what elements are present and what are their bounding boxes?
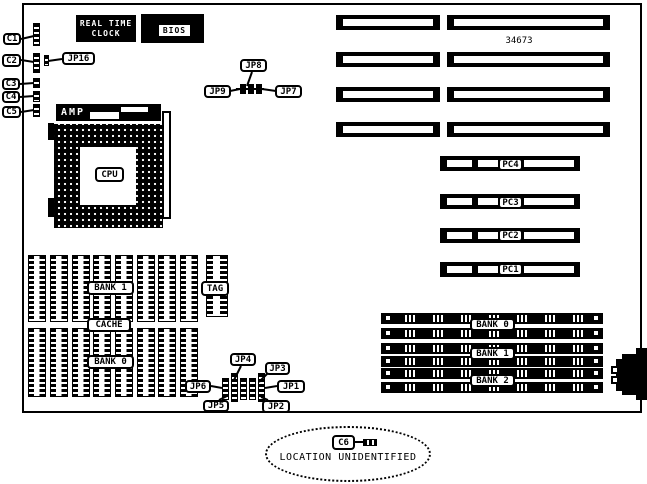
- connector-c1-pins: [33, 23, 40, 46]
- connector-c3-pins: [33, 78, 40, 88]
- isa-slot-segment: [447, 15, 610, 30]
- callout-c1: C1: [3, 33, 21, 45]
- jumper-strip-5: [258, 373, 265, 402]
- callout-jp3: JP3: [265, 362, 290, 375]
- callout-jp16: JP16: [62, 52, 95, 65]
- callout-simm-bank1: BANK 1: [470, 347, 515, 360]
- callout-c6: C6: [332, 435, 355, 450]
- isa-slot-segment: [336, 87, 440, 102]
- jumper-strip-1: [222, 378, 229, 400]
- callout-jp5: JP5: [203, 400, 229, 412]
- isa-slot-segment: [447, 52, 610, 67]
- callout-simm-bank0: BANK 0: [470, 318, 515, 331]
- isa-slot-segment: [336, 15, 440, 30]
- motherboard-diagram: C1 C2 C3 C4 C5 JP16 REAL TIME CLOCK BIOS…: [0, 0, 647, 484]
- cache-chip: [50, 255, 68, 322]
- isa-slot-segment: [336, 52, 440, 67]
- callout-jp6: JP6: [185, 380, 211, 393]
- callout-cache: CACHE: [87, 318, 131, 332]
- callout-jp9: JP9: [204, 85, 231, 98]
- callout-cpu: CPU: [95, 167, 124, 182]
- callout-simm-bank2: BANK 2: [470, 374, 515, 387]
- amp-socket-bar: AMP: [56, 104, 161, 121]
- cache-chip: [158, 328, 176, 397]
- callout-jp4: JP4: [230, 353, 256, 366]
- rtc-label-line1: REAL TIME: [80, 19, 132, 29]
- callout-pc3: PC3: [498, 196, 523, 209]
- callout-jp8: JP8: [240, 59, 267, 72]
- cache-chip: [180, 255, 198, 322]
- part-number: 34673: [499, 36, 539, 46]
- jp8-jumper: [248, 84, 254, 94]
- real-time-clock-chip: REAL TIME CLOCK: [76, 15, 136, 42]
- keyboard-connector-pin-1: [611, 366, 619, 374]
- bios-label: BIOS: [159, 25, 190, 36]
- callout-c5: C5: [2, 106, 21, 118]
- bios-chip: BIOS: [141, 14, 204, 43]
- callout-c2: C2: [2, 54, 21, 67]
- jumper-strip-2: [231, 373, 238, 402]
- callout-jp2: JP2: [262, 400, 290, 413]
- location-unidentified-text: LOCATION UNIDENTIFIED: [265, 452, 431, 463]
- amp-label: AMP: [61, 107, 85, 118]
- cache-chip: [158, 255, 176, 322]
- keyboard-connector-step1: [622, 354, 638, 395]
- callout-jp7: JP7: [275, 85, 302, 98]
- amp-notch-2: [90, 112, 119, 119]
- rtc-label-line2: CLOCK: [91, 29, 120, 39]
- keyboard-connector-pin-2: [611, 376, 619, 384]
- keyboard-connector-step2: [616, 359, 624, 391]
- callout-c3: C3: [2, 78, 20, 90]
- callout-cache-bank0: BANK 0: [87, 355, 134, 369]
- isa-slot-segment: [336, 122, 440, 137]
- callout-jp1: JP1: [277, 380, 305, 393]
- callout-c4: C4: [2, 91, 20, 103]
- cache-chip: [28, 328, 46, 397]
- callout-pc2: PC2: [498, 229, 523, 242]
- cache-chip: [137, 255, 155, 322]
- cache-chip: [28, 255, 46, 322]
- jumper-strip-3: [240, 378, 247, 400]
- connector-c4-pins: [33, 91, 40, 102]
- c6-jumper: [363, 439, 377, 446]
- amp-notch-1: [121, 107, 148, 112]
- connector-c5-pins: [33, 104, 40, 117]
- isa-slot-segment: [447, 87, 610, 102]
- socket-lever: [162, 111, 171, 219]
- jp7-jumper: [256, 84, 262, 94]
- callout-cache-bank1: BANK 1: [87, 281, 134, 295]
- jp16-jumper: [44, 55, 49, 66]
- connector-c2-pins: [33, 53, 40, 73]
- callout-pc4: PC4: [498, 158, 523, 171]
- cache-chip: [50, 328, 68, 397]
- jumper-strip-4: [249, 378, 256, 400]
- jp9-jumper: [240, 84, 246, 94]
- callout-pc1: PC1: [498, 263, 523, 276]
- cache-chip: [137, 328, 155, 397]
- callout-tag: TAG: [201, 281, 229, 296]
- isa-slot-segment: [447, 122, 610, 137]
